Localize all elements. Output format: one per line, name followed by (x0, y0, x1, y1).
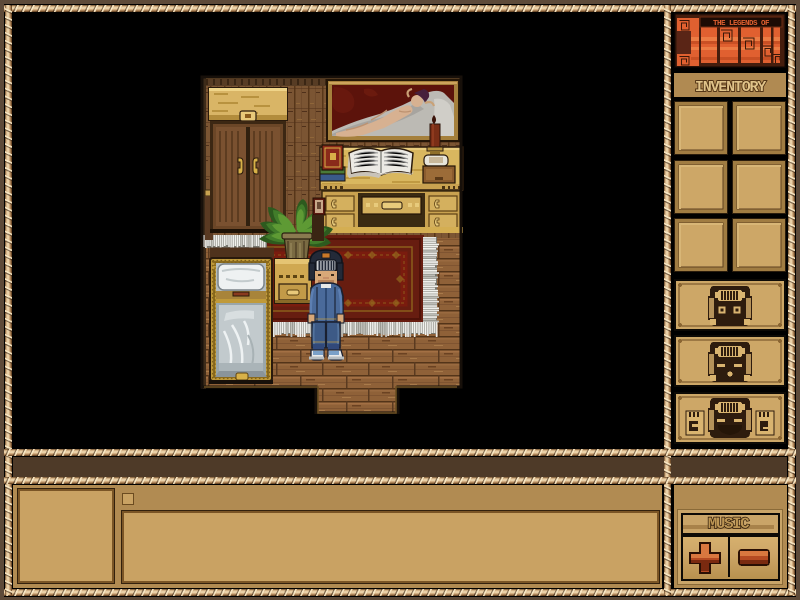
svg-text:THE LEGENDS OF: THE LEGENDS OF (713, 20, 770, 28)
svg-text:MUSIC: MUSIC (708, 515, 750, 531)
svg-text:INVENTORY: INVENTORY (695, 79, 766, 96)
